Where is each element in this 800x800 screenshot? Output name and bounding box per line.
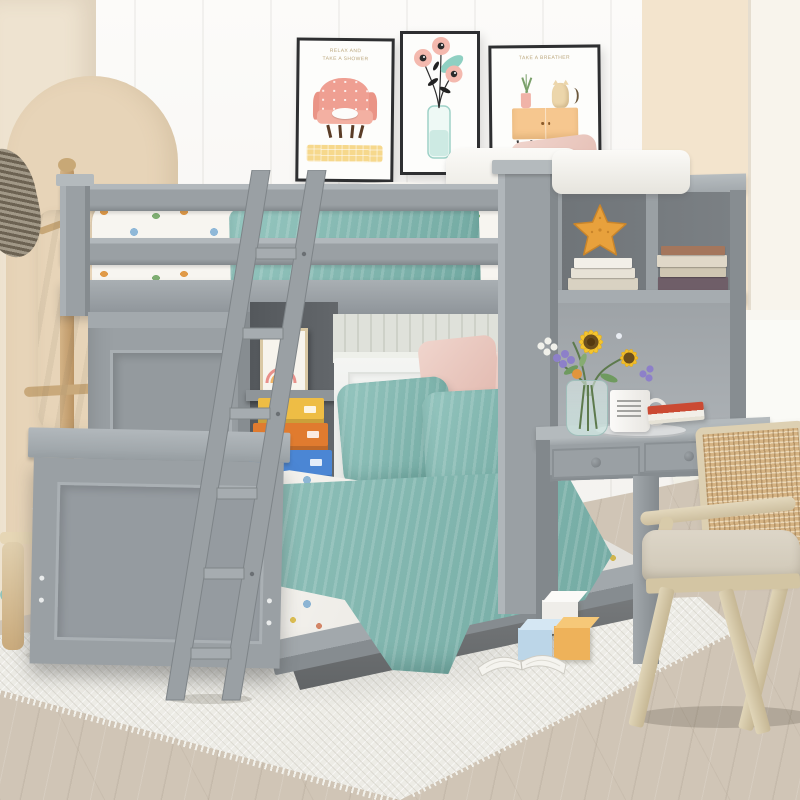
poster-sideboard-knob xyxy=(541,122,544,125)
bunk-ladder xyxy=(140,170,330,706)
poster-chair-leg xyxy=(338,125,342,138)
poster-caption-line2: TAKE A SHOWER xyxy=(323,55,369,61)
poster-caption-line1: TAKE A BREATHER xyxy=(519,55,570,62)
poster-cat-ear xyxy=(563,80,569,85)
loft-left-post xyxy=(60,180,90,316)
stacked-book xyxy=(657,255,727,267)
chair-shadow xyxy=(632,706,800,728)
poster-chair-leg xyxy=(358,125,364,138)
hutch-side-panel xyxy=(730,190,746,456)
stacked-book xyxy=(568,278,638,290)
rattan-chair xyxy=(626,418,800,738)
poster-plant-pot xyxy=(520,93,531,108)
glass-vase xyxy=(566,380,608,436)
poster-caption: RELAX AND TAKE A SHOWER xyxy=(299,48,391,64)
loft-left-post-cap xyxy=(56,174,94,186)
bedroom-scene: RELAX AND TAKE A SHOWER TAKE A BRE xyxy=(0,0,800,800)
footboard-screw xyxy=(39,598,44,603)
flower-stem xyxy=(587,385,589,431)
coat-rack-finial xyxy=(58,158,76,172)
poster-rug-art xyxy=(307,144,383,163)
poster-sideboard-door-line xyxy=(545,108,546,139)
open-book xyxy=(476,646,568,680)
folded-linens xyxy=(552,150,690,194)
poster-cat-tail xyxy=(568,87,579,103)
wall-pilaster xyxy=(748,0,800,336)
mug-print xyxy=(617,400,641,417)
poster-caption: TAKE A BREATHER xyxy=(491,54,597,63)
poster-caption-line1: RELAX AND xyxy=(330,48,362,54)
poster-sideboard-knob xyxy=(548,122,551,125)
poster-cat xyxy=(552,83,569,108)
hutch-shelf xyxy=(552,290,746,303)
stacked-book xyxy=(658,277,728,290)
poster-cat xyxy=(332,108,358,119)
poster-sideboard xyxy=(512,108,578,140)
hutch-cubby-divider xyxy=(646,192,658,296)
stacked-book xyxy=(660,267,726,277)
side-table-leg xyxy=(2,542,24,650)
poster-cat-ear xyxy=(553,80,559,85)
starfish-decor xyxy=(572,202,628,260)
poster-flower-illustration xyxy=(403,34,471,166)
poster-chair-leg xyxy=(350,125,354,138)
flower-stem xyxy=(590,385,597,429)
wall-art-armchair: RELAX AND TAKE A SHOWER xyxy=(295,37,395,182)
poster-chair-leg xyxy=(327,125,333,138)
footboard-screw xyxy=(39,576,44,581)
flower-stem xyxy=(579,385,586,429)
chair-leg xyxy=(628,586,675,728)
stacked-book xyxy=(571,268,635,278)
drawer-knob xyxy=(591,457,601,467)
stacked-book xyxy=(661,246,725,255)
